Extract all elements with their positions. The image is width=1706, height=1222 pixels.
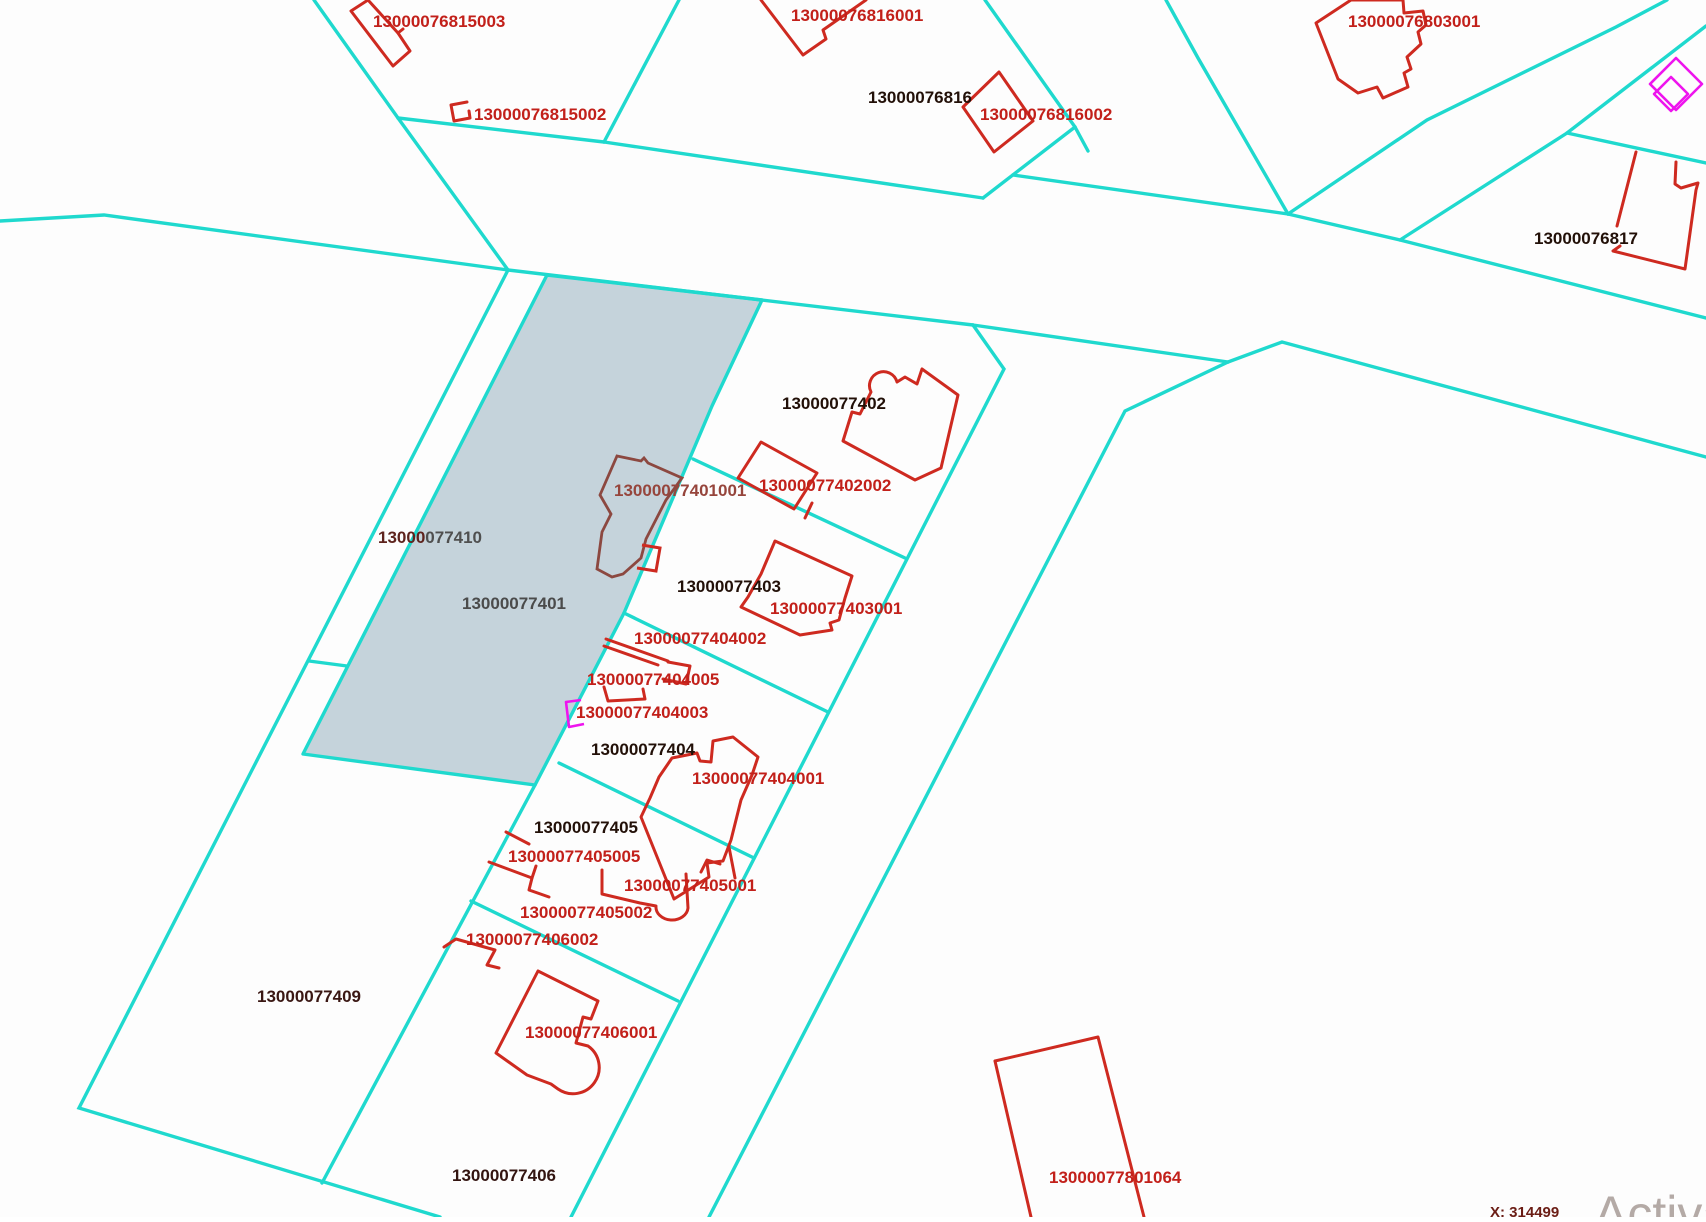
svg-text:13000077404005: 13000077404005 [587,670,719,689]
svg-text:13000077404002: 13000077404002 [634,629,766,648]
svg-text:13000076817: 13000076817 [1534,229,1638,248]
svg-text:13000077405005: 13000077405005 [508,847,640,866]
svg-text:13000077409: 13000077409 [257,987,361,1006]
svg-text:X: 314499: X: 314499 [1490,1204,1559,1217]
svg-text:13000077405001: 13000077405001 [624,876,756,895]
svg-text:13000077404: 13000077404 [591,740,696,759]
svg-text:13000077404001: 13000077404001 [692,769,824,788]
svg-text:13000076816: 13000076816 [868,88,972,107]
svg-text:13000077402: 13000077402 [782,394,886,413]
svg-text:13000077403001: 13000077403001 [770,599,902,618]
svg-text:13000077410: 13000077410 [378,528,482,547]
svg-text:13000077801064: 13000077801064 [1049,1168,1182,1187]
svg-text:13000077402002: 13000077402002 [759,476,891,495]
svg-text:13000077406001: 13000077406001 [525,1023,657,1042]
svg-text:13000076803001: 13000076803001 [1348,12,1480,31]
svg-text:13000076815002: 13000076815002 [474,105,606,124]
svg-text:13000076816002: 13000076816002 [980,105,1112,124]
svg-text:13000076815003: 13000076815003 [373,12,505,31]
svg-text:13000077404003: 13000077404003 [576,703,708,722]
svg-text:13000076816001: 13000076816001 [791,6,923,25]
svg-text:13000077406: 13000077406 [452,1166,556,1185]
svg-text:13000077401001: 13000077401001 [614,481,746,500]
svg-text:13000077401: 13000077401 [462,594,566,613]
svg-text:13000077406002: 13000077406002 [466,930,598,949]
svg-text:13000077405002: 13000077405002 [520,903,652,922]
svg-text:Activa: Activa [1594,1186,1706,1217]
svg-text:13000077403: 13000077403 [677,577,781,596]
svg-text:13000077405: 13000077405 [534,818,638,837]
